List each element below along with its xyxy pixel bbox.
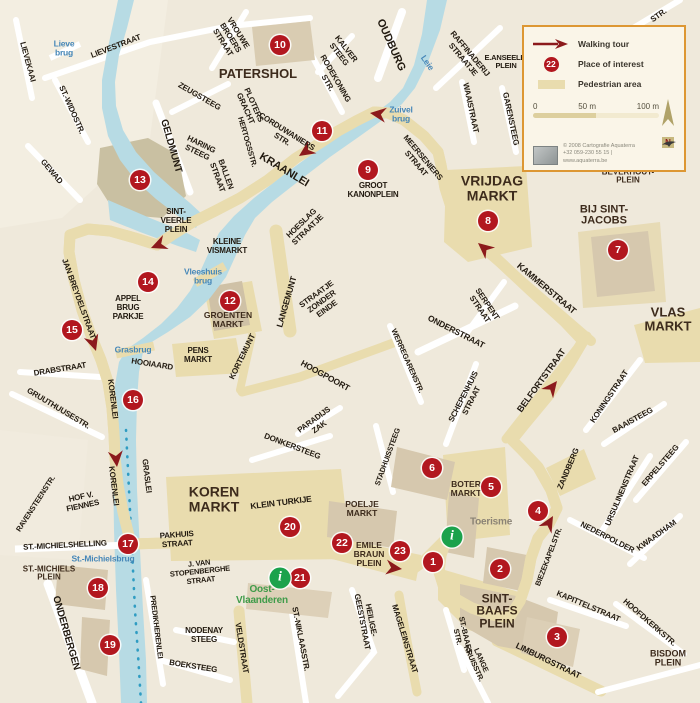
walking-tour-arrow-icon — [533, 39, 569, 49]
scale-mid: 50 m — [578, 102, 596, 111]
city-walking-tour-map: LIEVEKAAILIEVESTRAATLieve brugST.-WIDOST… — [0, 0, 700, 703]
poi-badge-icon: 22 — [544, 57, 559, 72]
credit-line-2: +32 059-230 55 15 | www.aquaterra.be — [563, 150, 656, 165]
scale-max: 100 m — [637, 102, 659, 111]
legend-pedestrian-label: Pedestrian area — [578, 79, 641, 89]
legend-poi-label: Place of interest — [578, 59, 644, 69]
bird-logo-icon — [661, 135, 677, 153]
scale-bar: 0 50 m 100 m — [533, 102, 659, 118]
legend-walking-tour-label: Walking tour — [578, 39, 629, 49]
map-credits: © 2008 Cartografie Aquaterra +32 059-230… — [533, 135, 677, 165]
legend-poi-row: 22 Place of interest — [533, 54, 675, 74]
credit-line-1: © 2008 Cartografie Aquaterra — [563, 143, 656, 150]
legend-walking-tour-row: Walking tour — [533, 34, 675, 54]
legend-pedestrian-row: Pedestrian area — [533, 74, 675, 94]
scale-zero: 0 — [533, 102, 537, 111]
publisher-logo-icon — [533, 146, 558, 165]
pedestrian-area-swatch-icon — [538, 80, 565, 89]
map-legend: Walking tour 22 Place of interest Pedest… — [522, 25, 686, 172]
